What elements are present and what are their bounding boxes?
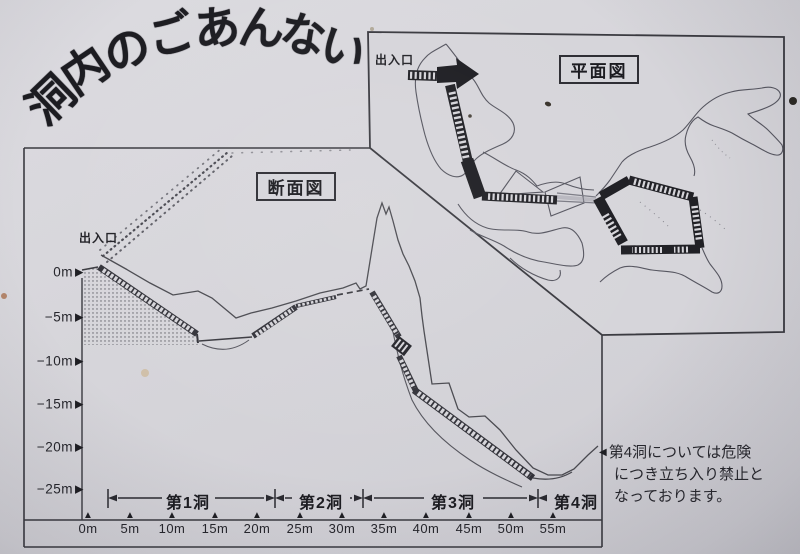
warning-marker-icon: ◀ [599, 442, 607, 464]
warning-note: ◀ 第4洞については危険 につき立ち入り禁止と なっております。 [599, 442, 799, 508]
distance-item: ▲15m [202, 511, 229, 536]
depth-arrow-icon: ▶ [75, 442, 84, 452]
distance-item: ▲20m [244, 511, 271, 536]
plan-label-box: 平面図 [559, 55, 639, 84]
note-line: ◀ 第4洞については危険 [599, 442, 799, 464]
triangle-up-icon: ▲ [506, 511, 516, 520]
depth-arrow-icon: ▶ [75, 356, 84, 366]
depth-arrow-icon: ▶ [75, 312, 84, 322]
section-entrance-label: 出入口 [79, 229, 118, 246]
triangle-up-icon: ▲ [125, 511, 135, 520]
distance-item: ▲0m [78, 511, 97, 536]
distance-item: ▲25m [287, 511, 314, 536]
depth-arrow-icon: ▶ [75, 399, 84, 409]
depth-label: −5m▶ [0, 310, 84, 325]
title-char: あ [192, 2, 243, 55]
depth-label: −15m▶ [0, 397, 84, 412]
distance-item: ▲35m [371, 511, 398, 536]
triangle-up-icon: ▲ [379, 511, 389, 520]
distance-item: ▲40m [413, 511, 440, 536]
note-line: なっております。 [599, 486, 799, 508]
distance-item: ▲50m [498, 511, 525, 536]
cave-span-label: 第3洞 [431, 489, 475, 513]
triangle-up-icon: ▲ [421, 511, 431, 520]
triangle-up-icon: ▲ [252, 511, 262, 520]
distance-item: ▲5m [120, 511, 139, 536]
depth-arrow-icon: ▶ [75, 484, 84, 494]
cave-guide-poster: 洞 内 の ご あ ん な い 平面図 断面図 出入口 出入口 0m▶ −5m▶… [0, 0, 800, 554]
section-label-box: 断面図 [256, 172, 336, 201]
distance-item: ▲45m [456, 511, 483, 536]
depth-arrow-icon: ▶ [75, 267, 84, 277]
cave-span-label: 第2洞 [299, 489, 343, 513]
depth-label: −10m▶ [0, 354, 84, 369]
cave-span-label: 第1洞 [166, 489, 210, 513]
depth-label: 0m▶ [0, 265, 84, 280]
distance-item: ▲30m [329, 511, 356, 536]
section-label: 断面図 [268, 174, 325, 199]
triangle-up-icon: ▲ [83, 511, 93, 520]
depth-label: −25m▶ [0, 482, 84, 497]
note-line: につき立ち入り禁止と [599, 464, 799, 486]
depth-label: −20m▶ [0, 440, 84, 455]
cave-span-label: 第4洞 [554, 489, 598, 513]
distance-item: ▲55m [540, 511, 567, 536]
plan-label: 平面図 [571, 57, 628, 82]
distance-item: ▲10m [159, 511, 186, 536]
surface-slope-stipple [100, 148, 350, 262]
plan-entrance-label: 出入口 [375, 51, 414, 68]
triangle-up-icon: ▲ [210, 511, 220, 520]
